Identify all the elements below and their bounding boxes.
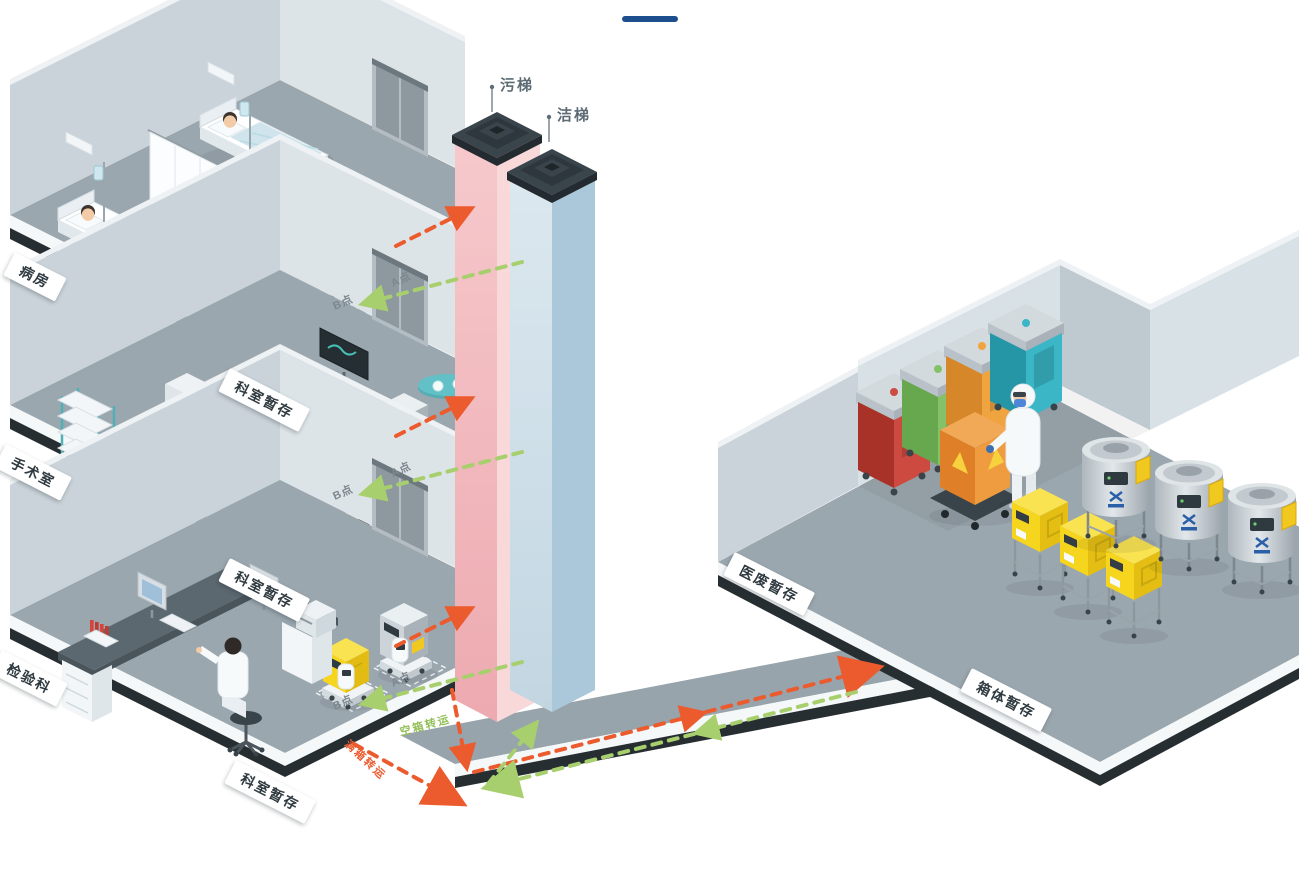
scene-illustration — [0, 0, 1299, 885]
title-dash — [622, 16, 678, 22]
label-dirty-elevator: 污梯 — [500, 74, 534, 95]
isometric-scene: 污梯 洁梯 病房 手术室 检验科 科室暂存 科室暂存 科室暂存 医废暂存 箱体暂… — [0, 0, 1299, 885]
label-clean-elevator: 洁梯 — [557, 104, 591, 125]
clean-elevator-shaft — [507, 149, 597, 712]
elevator-shafts — [452, 85, 597, 722]
